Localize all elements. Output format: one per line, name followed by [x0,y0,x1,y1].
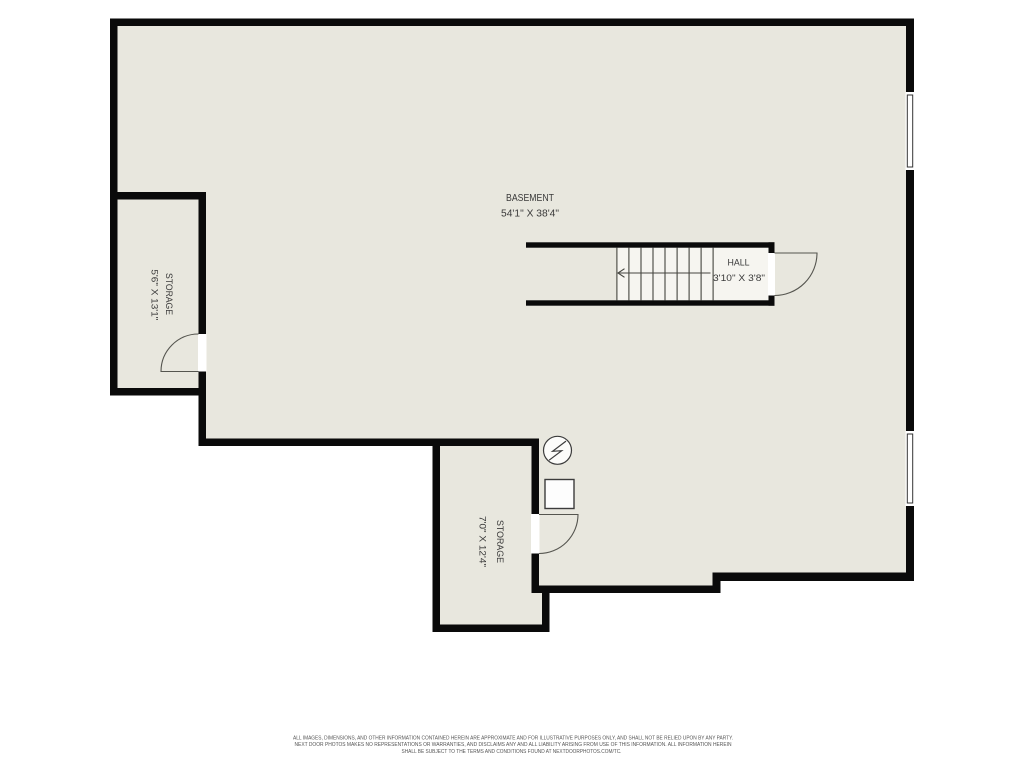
svg-text:7'0" X 12'4": 7'0" X 12'4" [478,516,488,567]
svg-text:HALL: HALL [728,258,750,269]
svg-text:STORAGE: STORAGE [494,520,505,563]
svg-text:54'1" X 38'4": 54'1" X 38'4" [501,209,559,220]
svg-text:ALL IMAGES, DIMENSIONS, AND OT: ALL IMAGES, DIMENSIONS, AND OTHER INFORM… [293,736,733,742]
svg-text:STORAGE: STORAGE [163,273,174,315]
svg-text:BASEMENT: BASEMENT [506,192,554,204]
svg-text:SHALL BE SUBJECT TO THE TERMS: SHALL BE SUBJECT TO THE TERMS AND CONDIT… [402,749,622,755]
svg-text:3'10" X 3'8": 3'10" X 3'8" [713,273,765,284]
svg-text:NEXT DOOR PHOTOS MAKES NO REPR: NEXT DOOR PHOTOS MAKES NO REPRESENTATION… [295,742,732,748]
svg-text:5'6" X 13'1": 5'6" X 13'1" [150,269,160,320]
